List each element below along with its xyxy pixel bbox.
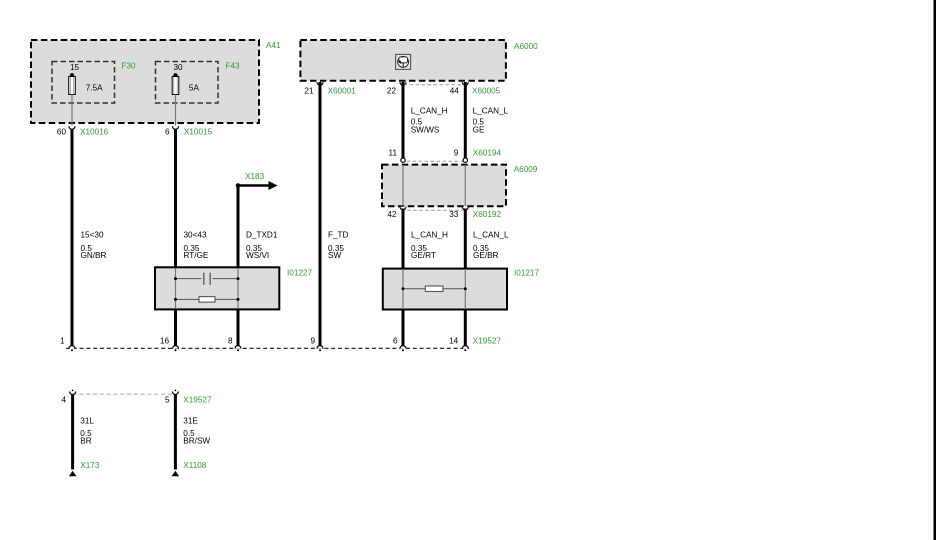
svg-text:11: 11 (389, 149, 398, 158)
svg-text:16: 16 (160, 337, 170, 346)
svg-text:X60001: X60001 (328, 86, 357, 95)
svg-text:L_CAN_L: L_CAN_L (473, 230, 509, 239)
svg-text:X183: X183 (245, 172, 265, 181)
svg-text:F30: F30 (122, 61, 137, 70)
svg-text:6: 6 (393, 337, 398, 346)
svg-text:44: 44 (450, 86, 460, 95)
svg-text:A6009: A6009 (514, 165, 538, 174)
svg-text:X60192: X60192 (473, 210, 502, 219)
svg-text:SW: SW (328, 251, 341, 260)
svg-text:31L: 31L (80, 417, 94, 426)
svg-text:60: 60 (57, 128, 67, 137)
svg-text:GE: GE (473, 126, 485, 135)
svg-text:GN/BR: GN/BR (81, 251, 107, 260)
svg-text:L_CAN_L: L_CAN_L (473, 106, 509, 115)
svg-text:X10016: X10016 (80, 128, 109, 137)
svg-text:I01227: I01227 (287, 269, 312, 278)
svg-text:WS/VI: WS/VI (246, 251, 269, 260)
svg-text:D_TXD1: D_TXD1 (246, 230, 278, 239)
svg-text:9: 9 (454, 149, 459, 158)
svg-text:BR: BR (80, 437, 91, 446)
svg-text:31E: 31E (183, 417, 198, 426)
svg-text:30<43: 30<43 (184, 230, 207, 239)
svg-text:X10015: X10015 (184, 128, 213, 137)
svg-text:5: 5 (165, 395, 170, 404)
svg-text:8: 8 (228, 337, 233, 346)
svg-text:4: 4 (62, 395, 67, 404)
svg-text:I01217: I01217 (514, 269, 539, 278)
svg-text:14: 14 (449, 337, 459, 346)
svg-text:15: 15 (70, 63, 80, 72)
svg-text:X19527: X19527 (473, 337, 502, 346)
svg-text:A41: A41 (266, 41, 281, 50)
svg-text:22: 22 (387, 86, 397, 95)
svg-text:GE/RT: GE/RT (411, 251, 436, 260)
svg-text:RT/GE: RT/GE (184, 251, 209, 260)
svg-text:42: 42 (387, 210, 397, 219)
svg-text:X1108: X1108 (183, 461, 207, 470)
svg-text:6: 6 (165, 128, 170, 137)
svg-text:15<30: 15<30 (81, 230, 104, 239)
svg-text:X60194: X60194 (473, 149, 502, 158)
svg-text:L_CAN_H: L_CAN_H (411, 106, 448, 115)
svg-text:21: 21 (304, 86, 314, 95)
svg-text:X60005: X60005 (472, 86, 501, 95)
svg-text:F_TD: F_TD (328, 230, 349, 239)
svg-text:X19527: X19527 (183, 395, 212, 404)
svg-text:SW/WS: SW/WS (411, 126, 440, 135)
svg-text:30: 30 (173, 63, 183, 72)
svg-text:9: 9 (310, 337, 315, 346)
svg-text:5A: 5A (189, 83, 200, 92)
svg-text:7.5A: 7.5A (86, 83, 103, 92)
svg-text:L_CAN_H: L_CAN_H (411, 230, 448, 239)
svg-text:F43: F43 (226, 61, 241, 70)
svg-text:X173: X173 (80, 461, 100, 470)
svg-text:A6000: A6000 (514, 42, 538, 51)
svg-text:1: 1 (60, 337, 65, 346)
svg-text:33: 33 (449, 210, 459, 219)
svg-text:BR/SW: BR/SW (183, 437, 210, 446)
svg-text:GE/BR: GE/BR (473, 251, 499, 260)
